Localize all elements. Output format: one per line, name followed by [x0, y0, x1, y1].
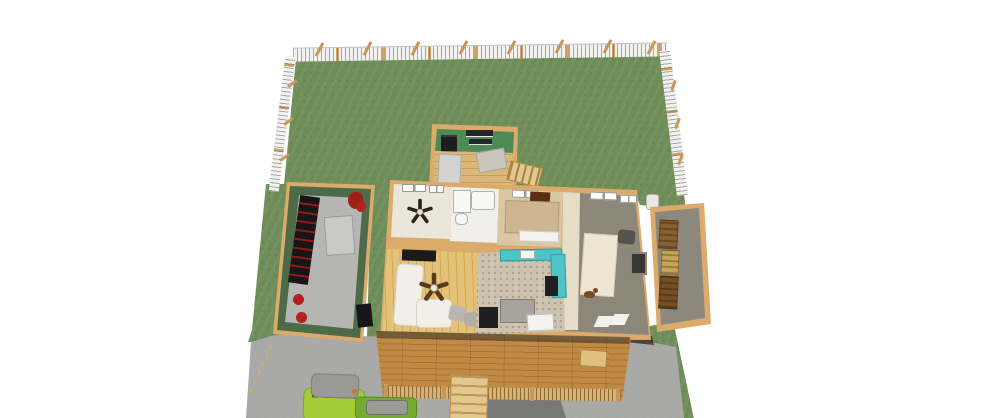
- tv-console[interactable]: [402, 249, 436, 261]
- armchair[interactable]: [617, 229, 635, 245]
- bathtub[interactable]: [471, 191, 495, 210]
- oven[interactable]: [545, 276, 558, 296]
- window: [429, 185, 444, 193]
- wall-shelf[interactable]: [466, 130, 493, 137]
- closet-doors[interactable]: [437, 153, 462, 185]
- stove[interactable]: [479, 307, 498, 328]
- ceiling-fan[interactable]: [418, 272, 450, 304]
- washer[interactable]: [441, 135, 457, 152]
- window: [620, 195, 637, 204]
- bed[interactable]: [504, 200, 559, 235]
- dog-head: [593, 288, 598, 293]
- porch-bench[interactable]: [579, 349, 607, 368]
- plan-3d-viewport[interactable]: [0, 0, 1000, 418]
- garage-door-opening: [356, 303, 373, 327]
- firewood-stack[interactable]: [658, 276, 679, 310]
- dishwasher[interactable]: [527, 313, 555, 331]
- ceiling-fan[interactable]: [406, 198, 434, 226]
- area-rug[interactable]: [580, 233, 618, 297]
- firewood-stack[interactable]: [660, 250, 679, 276]
- firewood-stack[interactable]: [658, 220, 678, 250]
- garage-work-table[interactable]: [324, 215, 356, 256]
- wall-shelf[interactable]: [469, 139, 492, 145]
- bed-bench[interactable]: [519, 230, 559, 242]
- car-roof: [366, 400, 408, 415]
- porch-post: [616, 388, 620, 402]
- truck-roof: [311, 373, 360, 399]
- truck-taillight: [352, 389, 357, 394]
- punching-bag-lobe: [356, 201, 366, 212]
- porch-post: [384, 384, 388, 398]
- fireplace[interactable]: [630, 252, 647, 275]
- window: [402, 184, 426, 192]
- red-canister[interactable]: [293, 294, 304, 305]
- porch-steps: [449, 374, 489, 418]
- porch-post: [442, 385, 446, 399]
- porch-post: [530, 387, 534, 401]
- toilet[interactable]: [455, 213, 468, 225]
- shower[interactable]: [453, 190, 471, 213]
- red-canister[interactable]: [296, 312, 307, 323]
- kitchen-sink[interactable]: [520, 250, 535, 259]
- window: [590, 192, 617, 201]
